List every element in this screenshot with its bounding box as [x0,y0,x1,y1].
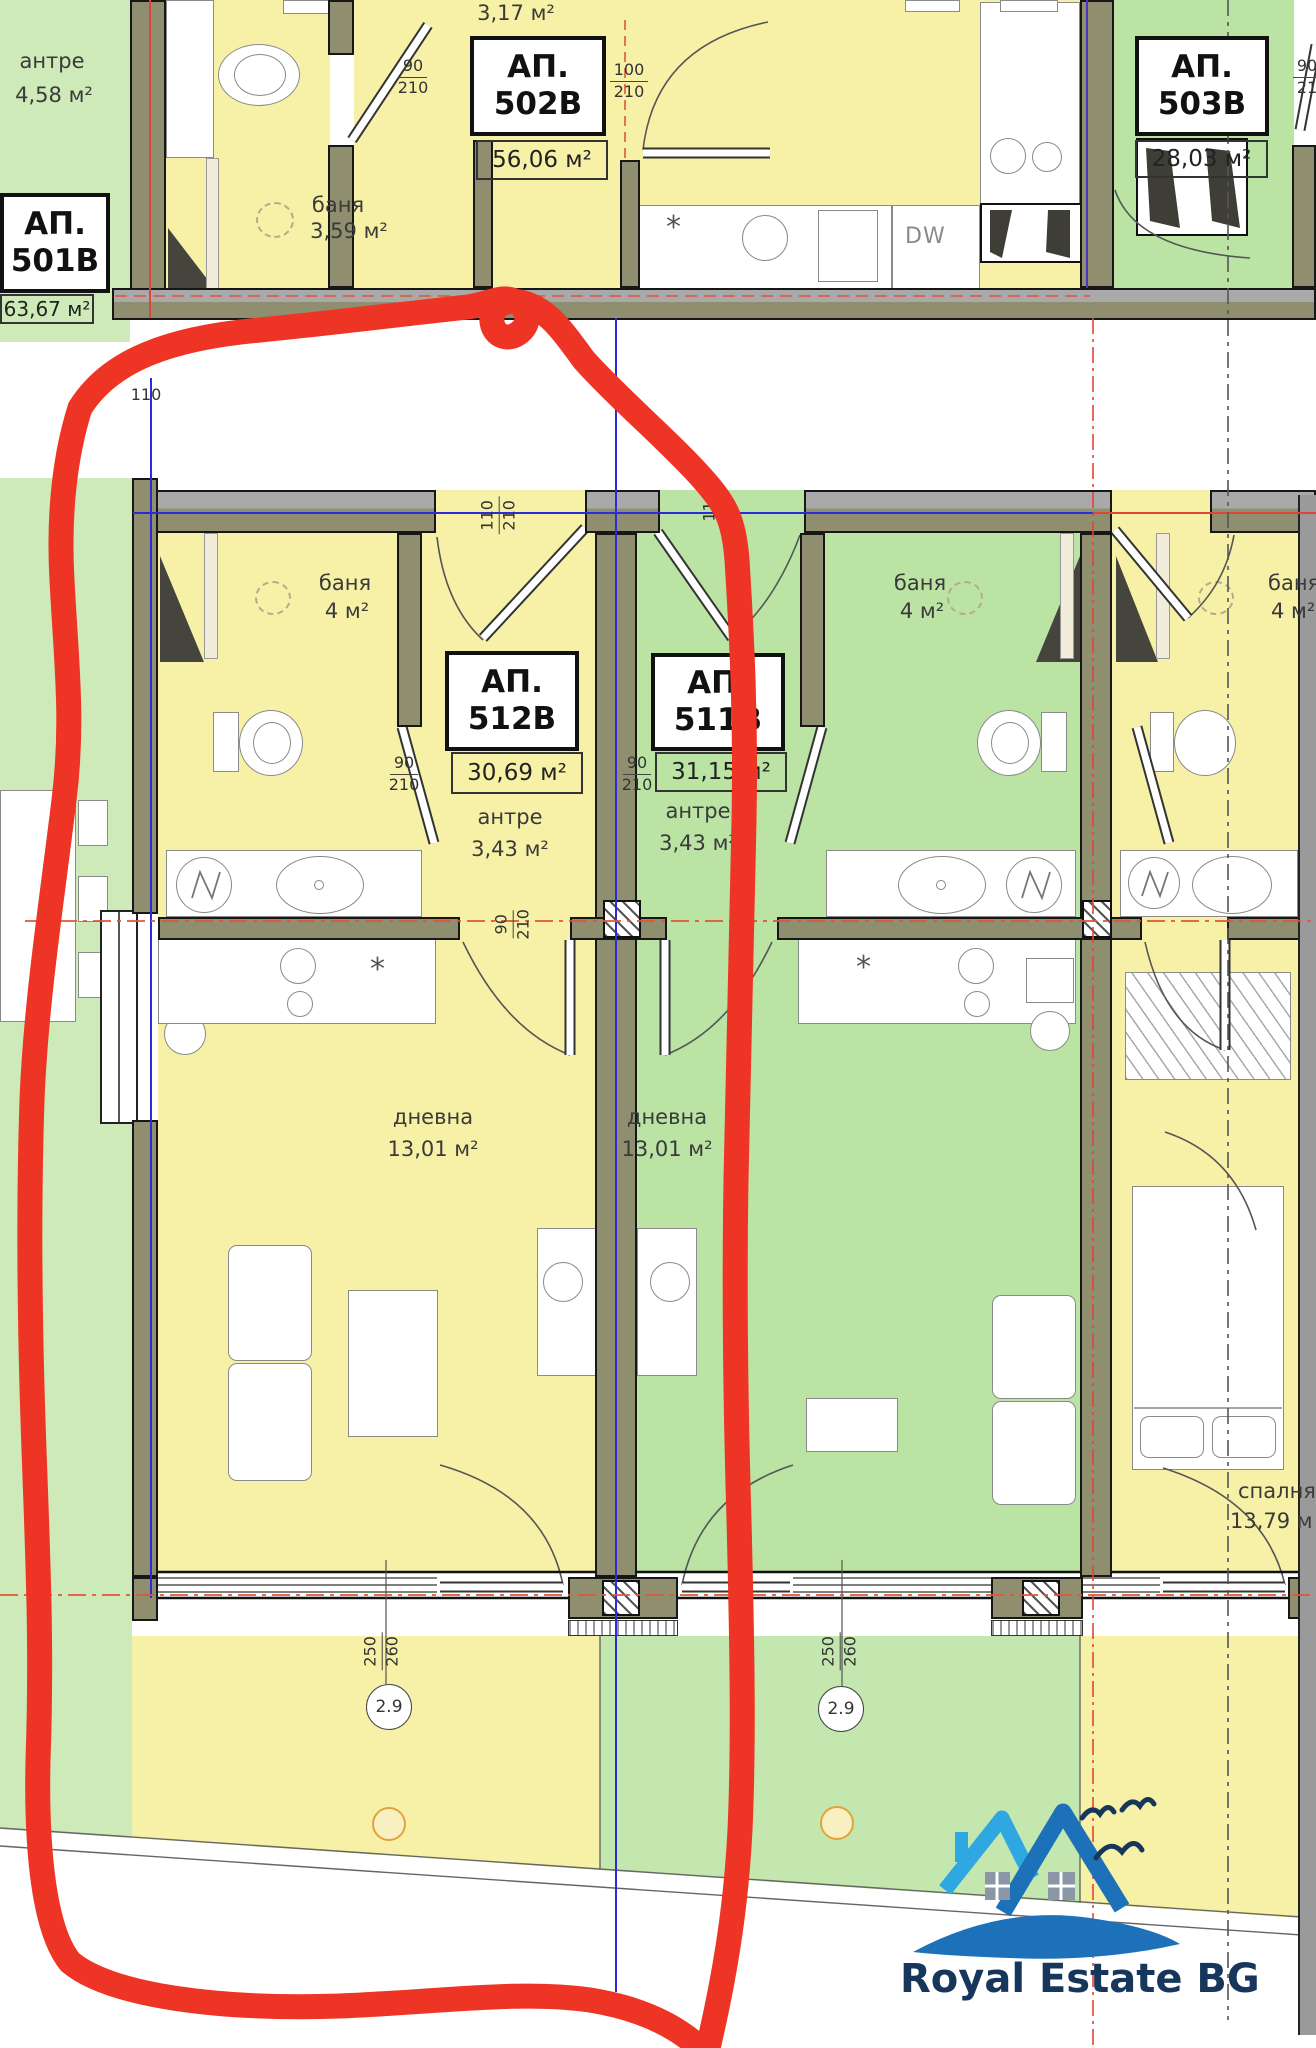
annotation-and-logo [0,0,1316,2048]
floor-plan: антре 4,58 м² АП. 501В 63,67 м² баня 3,5… [0,0,1316,2048]
logo-house-icon [913,1812,1180,1959]
red-marker-annotation [30,299,745,2048]
logo-wordmark: Royal Estate BG [900,1956,1260,2002]
